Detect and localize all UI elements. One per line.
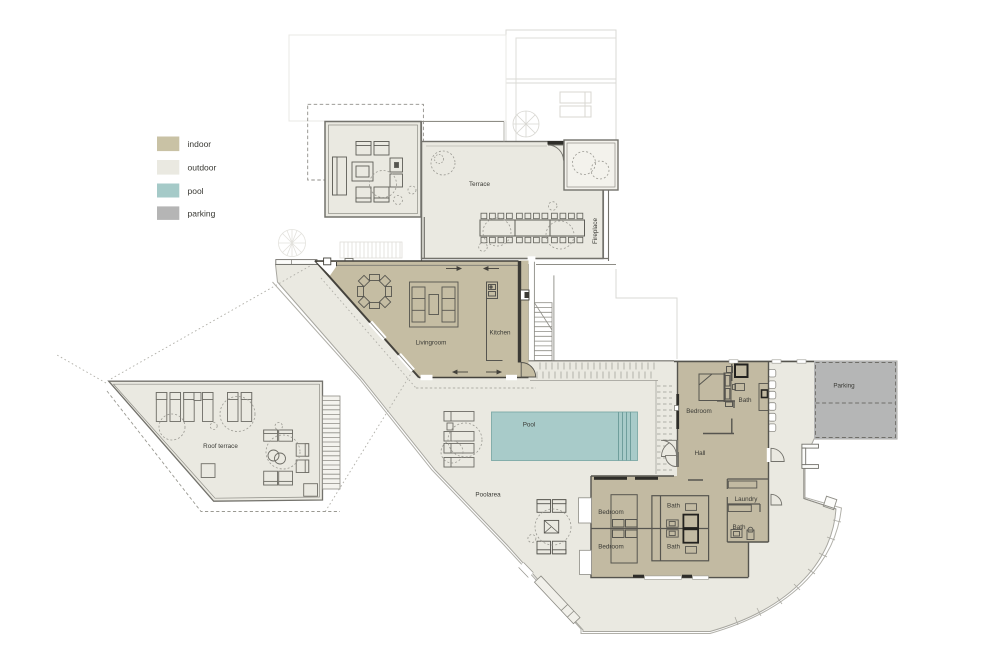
svg-text:outdoor: outdoor	[188, 163, 217, 173]
svg-text:Fireplace: Fireplace	[592, 218, 599, 244]
svg-text:indoor: indoor	[188, 139, 212, 149]
svg-text:Hall: Hall	[695, 450, 706, 457]
svg-text:Bath: Bath	[667, 544, 680, 551]
svg-text:Livingroom: Livingroom	[416, 340, 447, 347]
svg-text:parking: parking	[188, 209, 216, 219]
svg-text:Laundry: Laundry	[735, 496, 759, 503]
svg-text:Pool: Pool	[523, 422, 536, 429]
svg-text:pool: pool	[188, 186, 204, 196]
svg-text:Roof terrace: Roof terrace	[203, 443, 238, 450]
svg-text:Bedroom: Bedroom	[598, 544, 624, 551]
svg-text:Poolarea: Poolarea	[475, 492, 501, 499]
svg-text:Bedroom: Bedroom	[686, 408, 712, 415]
svg-text:Bedroom: Bedroom	[598, 509, 624, 516]
svg-text:Bath: Bath	[739, 397, 752, 404]
svg-text:Bath: Bath	[733, 524, 746, 531]
svg-text:Kitchen: Kitchen	[489, 329, 511, 336]
svg-text:Terrace: Terrace	[469, 181, 490, 188]
svg-text:Bath: Bath	[667, 503, 680, 510]
svg-text:Parking: Parking	[833, 383, 855, 390]
